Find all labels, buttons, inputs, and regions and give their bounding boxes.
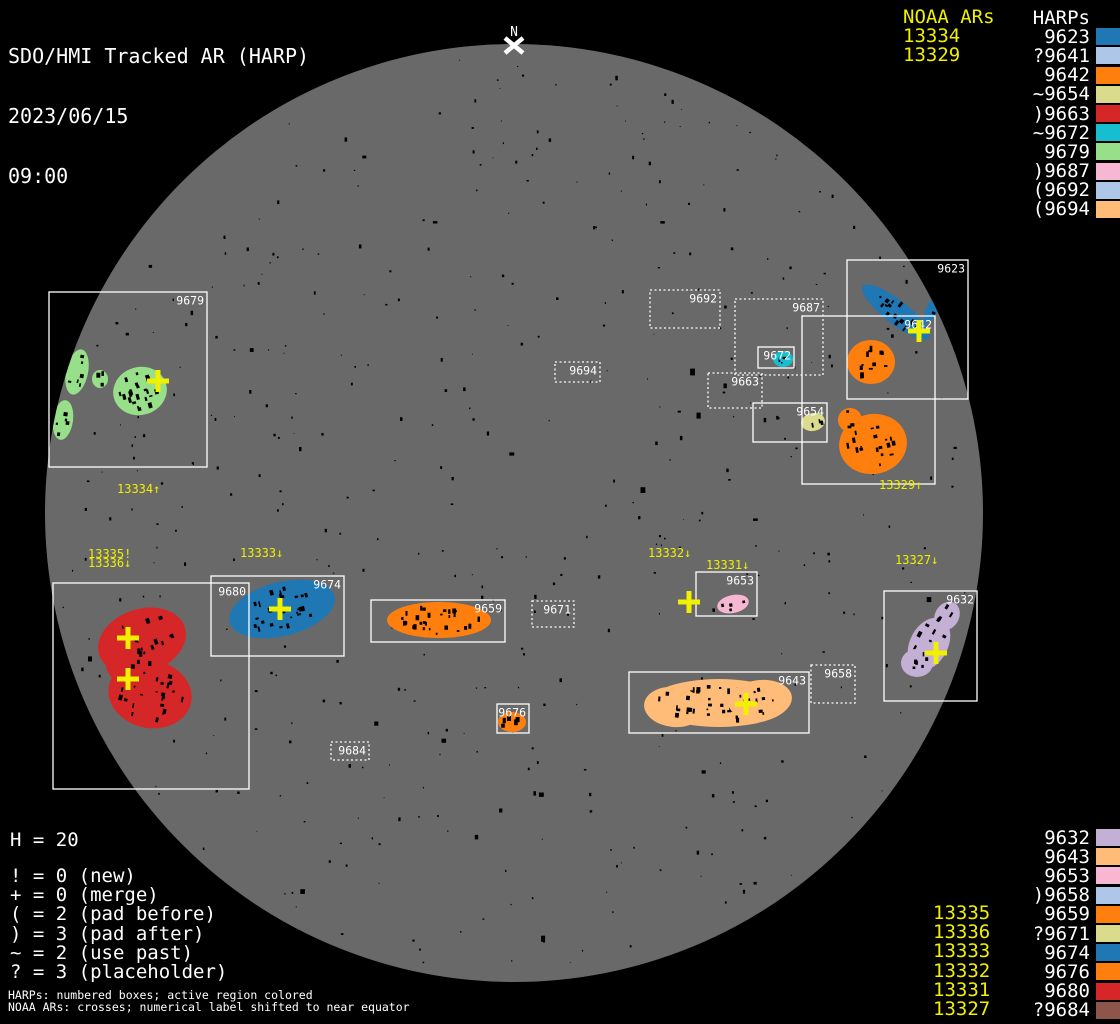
sunspot (866, 351, 869, 357)
sunspot (141, 648, 143, 651)
noaa-ar-number: 13333 (933, 942, 990, 961)
sunspot (101, 383, 104, 387)
noaa-disk-label: 13332↓ (648, 546, 691, 560)
sunspot (401, 617, 403, 620)
legend-line: ? = 3 (placeholder) (10, 963, 227, 982)
sunspot (727, 688, 730, 694)
harp-count: H = 20 (10, 829, 79, 851)
harp-box-label-9672: 9672 (763, 349, 791, 363)
harp-list-item: 9676 (1000, 962, 1120, 981)
harp-list-item: 9642 (1000, 66, 1120, 85)
sunspot (921, 665, 924, 668)
harp-color-swatch (1096, 887, 1120, 904)
sunspot (675, 713, 679, 718)
north-label: N (510, 25, 518, 40)
sunspot (428, 613, 431, 618)
sunspot (423, 608, 426, 611)
sunspot (143, 652, 145, 655)
sunspot (719, 687, 721, 689)
footnote-line: NOAA ARs: crosses; numerical label shift… (8, 1001, 410, 1013)
sunspot (708, 698, 710, 700)
harp-color-swatch (1096, 28, 1120, 45)
noaa-top-values: 1333413329 (903, 27, 995, 65)
harp-list-item: 9680 (1000, 982, 1120, 1001)
time-label: 09:00 (8, 166, 309, 186)
harp-color-swatch (1096, 143, 1120, 160)
sunspot (468, 624, 471, 629)
sunspot (772, 699, 774, 701)
sunspot (762, 697, 766, 700)
sunspot (444, 626, 448, 630)
harp-list-item: ?9671 (1000, 924, 1120, 943)
harp-list-item: )9687 (1000, 162, 1120, 181)
harp-color-swatch (1096, 124, 1120, 141)
noaa-top-panel: NOAA ARs 1333413329 (903, 8, 995, 66)
sunspot (885, 439, 887, 441)
sunspot (420, 606, 422, 611)
sunspot (869, 368, 873, 370)
sunspot (478, 617, 481, 622)
harp-color-swatch (1096, 829, 1120, 846)
harp-box-label-9694: 9694 (569, 364, 597, 378)
harp-list-item: )9663 (1000, 104, 1120, 123)
harp-box-label-9663: 9663 (731, 375, 759, 389)
harp-color-swatch (1096, 201, 1120, 218)
harp-box-label-9680: 9680 (218, 585, 246, 599)
sunspot (925, 657, 928, 661)
sunspot (65, 421, 69, 425)
sunspot (449, 615, 451, 618)
app-title: SDO/HMI Tracked AR (HARP) (8, 46, 309, 66)
harp-box-label-9674: 9674 (313, 578, 341, 592)
sunspot (707, 713, 710, 715)
sunspot (454, 611, 456, 617)
harp-color-swatch (1096, 848, 1120, 865)
sunspot (707, 709, 709, 711)
sunspot (708, 704, 712, 707)
harp-color-swatch (1096, 925, 1120, 942)
title-block: SDO/HMI Tracked AR (HARP) 2023/06/15 09:… (8, 6, 309, 226)
sunspot (686, 707, 690, 712)
sunspot (913, 667, 916, 670)
sunspot (56, 422, 58, 425)
sunspot (137, 660, 140, 664)
harp-list-item: 9674 (1000, 943, 1120, 962)
harp-number: ?9684 (1000, 999, 1090, 1021)
sunspot (860, 366, 863, 370)
harp-list-item: )9658 (1000, 886, 1120, 905)
sunspot (501, 724, 505, 728)
harp-box-label-9654: 9654 (796, 405, 824, 419)
harp-list-item: 9659 (1000, 905, 1120, 924)
sunspot (423, 621, 426, 624)
footnotes: HARPs: numbered boxes; active region col… (8, 989, 410, 1014)
sunspot (872, 363, 876, 367)
noaa-disk-label: 13333↓ (240, 546, 283, 560)
harp-box-label-9658: 9658 (824, 667, 852, 681)
flag-legend: ! = 0 (new)+ = 0 (merge)( = 2 (pad befor… (10, 867, 227, 982)
sunspot (416, 615, 420, 620)
harp-color-swatch (1096, 86, 1120, 103)
sunspot (720, 704, 723, 707)
date-label: 2023/06/15 (8, 106, 309, 126)
sunspot (762, 712, 764, 715)
harp-color-swatch (1096, 163, 1120, 180)
sunspot (404, 621, 408, 625)
harp-box-label-9687: 9687 (792, 301, 820, 315)
noaa-disk-label: 13331↓ (706, 558, 749, 572)
harp-color-swatch (1096, 67, 1120, 84)
harp-box-label-9676: 9676 (498, 706, 526, 720)
sunspot (420, 622, 423, 625)
sunspot (860, 446, 862, 448)
harp-color-swatch (1096, 906, 1120, 923)
sunspot (757, 688, 760, 692)
harp-color-swatch (1096, 47, 1120, 64)
sunspot (429, 628, 431, 631)
sunspot (686, 696, 690, 701)
sunspot (881, 352, 884, 356)
harp-list-item: ?9684 (1000, 1001, 1120, 1020)
sunspot (850, 423, 854, 426)
harp-box-label-9623: 9623 (937, 262, 965, 276)
sunspot (464, 626, 467, 630)
harp-box-label-9653: 9653 (726, 574, 754, 588)
sunspot (96, 373, 100, 378)
sunspot (57, 432, 60, 436)
sunspot (884, 365, 887, 367)
harp-color-swatch (1096, 944, 1120, 961)
sunspot (65, 418, 68, 421)
harp-bottom-list: 963296439653)96589659?9671967496769680?9… (1000, 828, 1120, 1020)
harp-solar-map: 9679968096749659967196769684969496929687… (0, 0, 1120, 1024)
sunspot (443, 609, 446, 612)
sunspot (861, 364, 863, 366)
sunspot (143, 672, 145, 674)
sunspot (137, 648, 140, 654)
sunspot (754, 691, 756, 693)
sunspot (876, 425, 880, 428)
harp-list-item: 9679 (1000, 142, 1120, 161)
sunspot (148, 661, 151, 666)
harp-box-label-9632: 9632 (946, 593, 974, 607)
noaa-disk-label: 13327↓ (895, 553, 938, 567)
harp-box-label-9679: 9679 (176, 294, 204, 308)
harp-box-label-9643: 9643 (778, 674, 806, 688)
sunspot (101, 371, 104, 376)
sunspot (406, 611, 408, 616)
legend-line: ( = 2 (pad before) (10, 905, 227, 924)
sunspot (677, 708, 681, 711)
sunspot (440, 614, 442, 616)
harp-color-swatch (1096, 867, 1120, 884)
harp-list-item: (9694 (1000, 200, 1120, 219)
sunspot (739, 695, 741, 698)
active-region-blob (838, 408, 862, 432)
harp-color-swatch (1096, 963, 1120, 980)
harp-list-item: 9643 (1000, 847, 1120, 866)
sunspot (742, 600, 745, 603)
noaa-disk-label: 13334↑ (117, 482, 160, 496)
sunspot (861, 372, 864, 378)
sunspot (457, 630, 460, 632)
harp-list-item: ~9654 (1000, 85, 1120, 104)
harp-number: (9694 (1000, 198, 1090, 220)
sunspot (707, 685, 711, 689)
active-region-blob (847, 340, 895, 384)
harp-list-item: (9692 (1000, 181, 1120, 200)
harp-list-item: 9623 (1000, 27, 1120, 46)
harp-color-swatch (1096, 1002, 1120, 1019)
sunspot (665, 692, 669, 696)
sunspot (423, 627, 425, 630)
harp-color-swatch (1096, 182, 1120, 199)
harp-box-label-9684: 9684 (338, 744, 366, 758)
noaa-disk-label: 13329↑ (879, 478, 922, 492)
sunspot (759, 709, 763, 713)
sunspot (727, 710, 731, 712)
sunspot (448, 609, 450, 614)
sunspot (846, 410, 849, 413)
sunspot (736, 716, 738, 720)
harp-color-swatch (1096, 105, 1120, 122)
sunspot (873, 434, 877, 438)
harp-box-label-9659: 9659 (474, 602, 502, 616)
harp-box-label-9692: 9692 (689, 292, 717, 306)
harp-list-item: ~9672 (1000, 123, 1120, 142)
sunspot (686, 712, 688, 715)
harp-list-item: ?9641 (1000, 46, 1120, 65)
sunspot (914, 660, 917, 664)
sunspot (881, 453, 884, 456)
harp-top-list: HARPs9623?96419642~9654)9663~96729679)96… (1000, 8, 1120, 219)
sunspot (722, 710, 725, 714)
sunspot (697, 687, 701, 692)
noaa-disk-label: 13336↓ (88, 556, 131, 570)
sunspot (859, 448, 863, 451)
harp-box-label-9671: 9671 (543, 603, 571, 617)
noaa-ar-number: 13329 (903, 46, 995, 65)
sunspot (168, 674, 173, 679)
noaa-bottom-panel: 133351333613333133321333113327 (933, 904, 990, 1019)
sunspot (131, 664, 135, 668)
legend-line: ) = 3 (pad after) (10, 925, 227, 944)
sunspot (923, 652, 925, 656)
harp-list-item: 9632 (1000, 828, 1120, 847)
noaa-ar-number: 13332 (933, 962, 990, 981)
noaa-ar-number: 13327 (933, 1000, 990, 1019)
sunspot (412, 625, 416, 629)
sunspot (436, 633, 438, 635)
sunspot (160, 682, 164, 685)
harp-list-item: 9653 (1000, 866, 1120, 885)
harp-color-swatch (1096, 983, 1120, 1000)
sunspot (63, 412, 68, 417)
harp-list-header-row: HARPs (1000, 8, 1120, 27)
sunspot (514, 719, 518, 725)
region-fill (838, 408, 862, 432)
sunspot (938, 296, 942, 300)
active-region-blob (92, 370, 108, 388)
